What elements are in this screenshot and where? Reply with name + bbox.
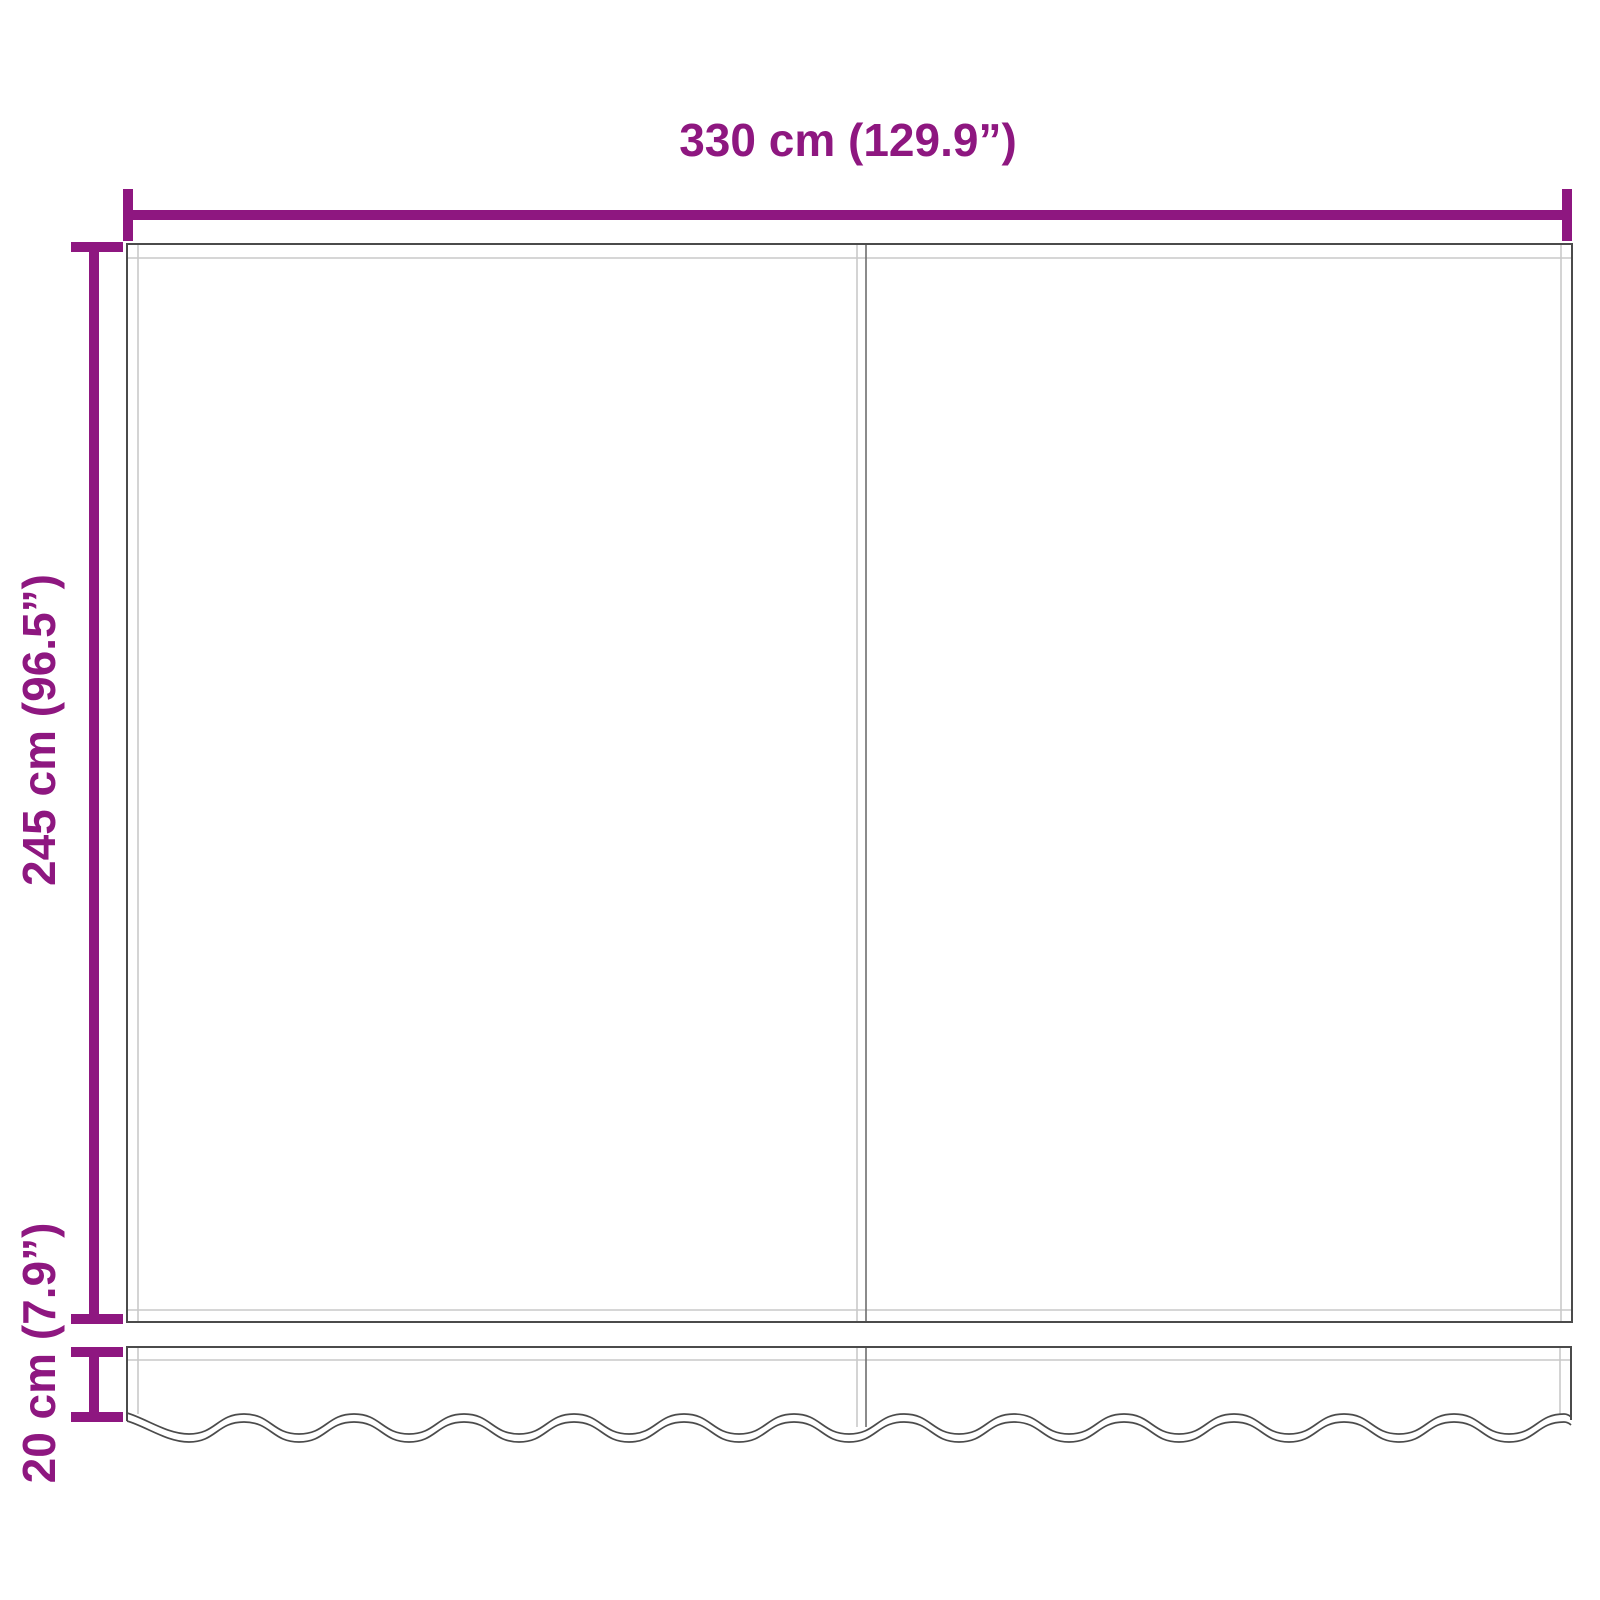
fabric-seam-lines — [128, 245, 1571, 1427]
fabric-drawing — [127, 244, 1572, 1442]
diagram-canvas: 330 cm (129.9”) 245 cm (96.5”) 20 cm (7.… — [0, 0, 1600, 1600]
valance-height-dimension-line — [71, 1352, 123, 1417]
awning-fabric-dimension-diagram: 330 cm (129.9”) 245 cm (96.5”) 20 cm (7.… — [0, 0, 1600, 1600]
main-fabric-panel — [127, 244, 1572, 1322]
valance-outline — [127, 1347, 1571, 1421]
valance-height-dimension-label: 20 cm (7.9”) — [13, 1223, 65, 1484]
valance-wave-lower — [127, 1421, 1571, 1442]
height-dimension-label: 245 cm (96.5”) — [13, 574, 65, 886]
width-dimension-label: 330 cm (129.9”) — [679, 114, 1017, 166]
fabric-outlines — [127, 244, 1572, 1442]
height-dimension-line — [71, 247, 123, 1319]
dimension-lines — [71, 189, 1567, 1417]
width-dimension-line — [128, 189, 1567, 241]
